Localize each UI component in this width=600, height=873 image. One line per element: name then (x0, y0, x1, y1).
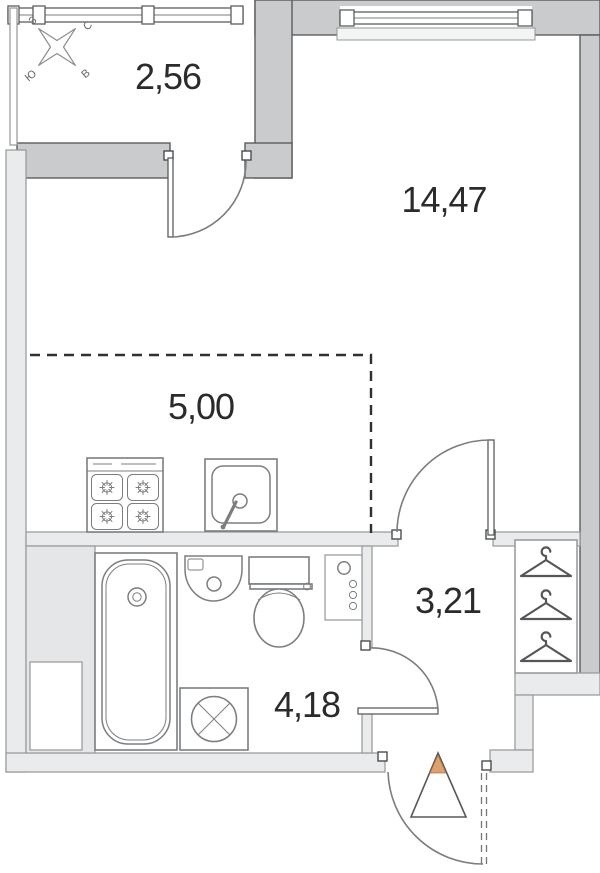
door-swing-arc (171, 161, 246, 237)
room-balcony (17, 22, 243, 143)
floor-plan: 2,56 14,47 5,00 4,18 3,21 З С Ю В (0, 0, 600, 873)
balcony-side-wall (10, 8, 17, 145)
balcony-door (164, 151, 251, 237)
wall-niche (30, 662, 82, 750)
balcony-area-label: 2,56 (135, 56, 201, 98)
door-leaf (168, 158, 173, 237)
room-kitchen-zone (26, 355, 371, 532)
room-regions (17, 22, 580, 772)
bathroom-area-label: 4,18 (274, 684, 340, 726)
kitchen-area-label: 5,00 (168, 386, 234, 428)
floor-plan-drawing (0, 0, 600, 873)
living-room-window (337, 6, 535, 40)
living-room-area-label: 14,47 (401, 179, 486, 221)
hallway-area-label: 3,21 (415, 580, 481, 622)
